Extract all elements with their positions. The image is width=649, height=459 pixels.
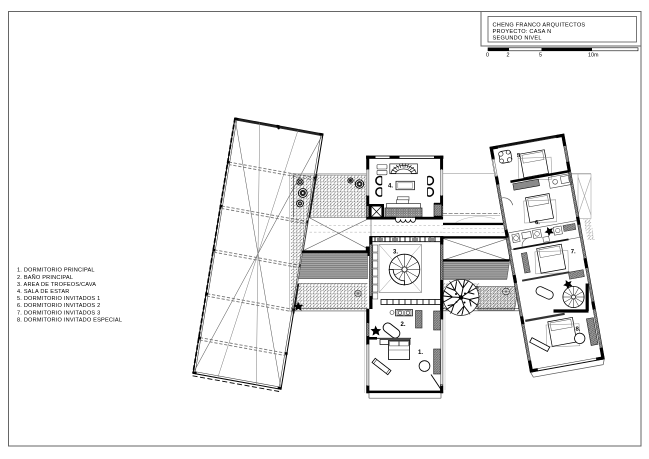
svg-text:1. DORMITORIO PRINCIPAL: 1. DORMITORIO PRINCIPAL — [17, 268, 95, 274]
svg-text:4.: 4. — [388, 184, 393, 190]
svg-text:SEGUNDO NIVEL: SEGUNDO NIVEL — [493, 35, 542, 41]
svg-text:1.: 1. — [418, 350, 423, 356]
svg-text:2. BAÑO PRINCIPAL: 2. BAÑO PRINCIPAL — [17, 274, 73, 281]
svg-text:6.: 6. — [535, 220, 540, 226]
svg-text:2.: 2. — [401, 322, 406, 328]
svg-text:7. DORMITORIO INVITADOS 3: 7. DORMITORIO INVITADOS 3 — [17, 310, 100, 316]
svg-text:8.: 8. — [575, 327, 580, 333]
svg-text:10m: 10m — [588, 53, 599, 59]
svg-text:5. DORMITORIO INVITADOS 1: 5. DORMITORIO INVITADOS 1 — [17, 296, 100, 302]
svg-text:0: 0 — [486, 53, 489, 59]
svg-text:PROYECTO: CASA N: PROYECTO: CASA N — [493, 29, 552, 35]
svg-text:7.: 7. — [571, 249, 576, 255]
svg-text:3.: 3. — [393, 250, 398, 256]
svg-text:4. SALA DE ESTAR: 4. SALA DE ESTAR — [17, 289, 70, 295]
svg-text:6. DORMITORIO INVITADOS 2: 6. DORMITORIO INVITADOS 2 — [17, 303, 100, 309]
svg-text:3. AREA DE TROFEOS/CAVA: 3. AREA DE TROFEOS/CAVA — [17, 282, 96, 288]
svg-text:CHENG FRANCO ARQUITECTOS: CHENG FRANCO ARQUITECTOS — [493, 22, 586, 28]
svg-text:2: 2 — [507, 53, 510, 59]
svg-text:5: 5 — [539, 53, 542, 59]
svg-text:8. DORMITORIO INVITADO ESPECIA: 8. DORMITORIO INVITADO ESPECIAL — [17, 317, 122, 323]
